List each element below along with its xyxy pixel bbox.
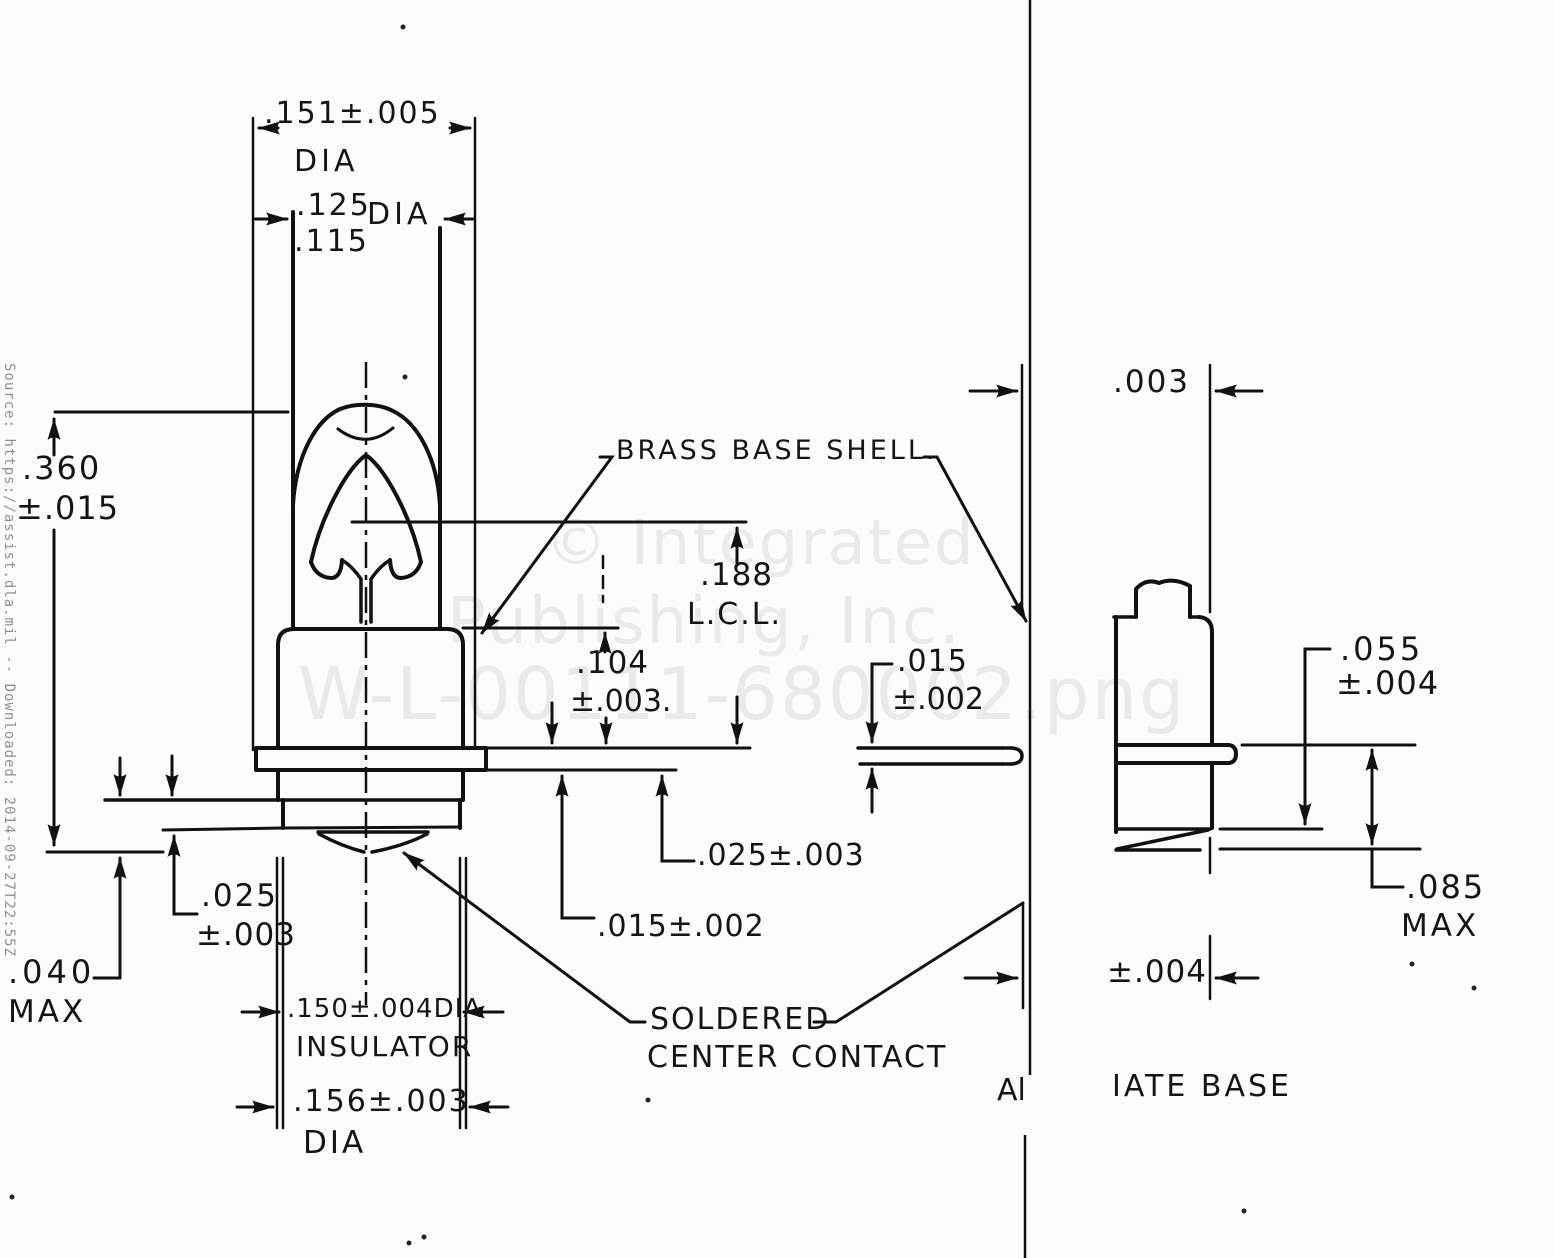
alt-caption-left: Al <box>997 1076 1026 1106</box>
dim-insulator-step-tol: ±.003 <box>196 920 296 951</box>
label-lcl: L.C.L. <box>687 600 782 630</box>
engineering-drawing-page: © Integrated Publishing, Inc. W-L-00111-… <box>0 0 1555 1258</box>
dim-contact-height: .040 <box>8 956 95 988</box>
alt-dim-contact-plane-tol: ±.004 <box>1336 667 1439 699</box>
dim-overall-height: .360 <box>22 452 101 484</box>
alt-dim-offset: .003 <box>1113 367 1190 398</box>
dim-bulb-dia-min: .115 <box>294 227 369 257</box>
dim-insulator-step: .025 <box>201 881 278 912</box>
alt-label-max: MAX <box>1401 911 1479 942</box>
source-note: Source: https://assist.dla.mil -- Downlo… <box>1 363 17 963</box>
label-flange-dia-unit: DIA <box>303 1128 366 1159</box>
dim-lcl: .188 <box>700 560 773 591</box>
alt-dim-flange-thickness-tol: ±.002 <box>892 685 984 715</box>
dim-base-height-tol: ±.003. <box>570 687 671 717</box>
alt-dim-flange-thickness: .015 <box>897 647 968 677</box>
label-brass-base-shell: BRASS BASE SHELL. <box>616 437 937 464</box>
dim-overall-height-tol: ±.015 <box>16 492 119 524</box>
dim-flange-to-base: .025±.003 <box>697 841 865 871</box>
dim-shell-dia: .151±.005 <box>264 99 441 129</box>
dim-base-height: .104 <box>576 648 649 679</box>
alt-dim-overall-max: .085 <box>1406 871 1485 903</box>
main-lamp-outline <box>47 212 746 852</box>
label-center-contact: CENTER CONTACT <box>647 1043 947 1073</box>
main-dimension-lines <box>54 118 750 1128</box>
label-shell-dia-unit: DIA <box>294 147 358 177</box>
label-contact-height-max: MAX <box>8 997 86 1028</box>
dim-insulator-dia: .150±.004DIA <box>287 996 482 1022</box>
dim-bulb-dia-max: .125 <box>296 191 371 221</box>
alt-dim-bottom: ±.004 <box>1107 957 1207 988</box>
alt-caption-right: IATE BASE <box>1112 1072 1292 1102</box>
dim-flange-dia: .156±.003 <box>293 1087 470 1117</box>
fold-line <box>1025 0 1030 1258</box>
alt-dim-contact-plane: .055 <box>1340 633 1423 665</box>
dim-flange-thickness: .015±.002 <box>597 912 765 942</box>
label-insulator: INSULATOR <box>296 1033 473 1061</box>
label-soldered: SOLDERED <box>650 1005 830 1035</box>
label-bulb-dia-unit: DIA <box>367 200 431 230</box>
